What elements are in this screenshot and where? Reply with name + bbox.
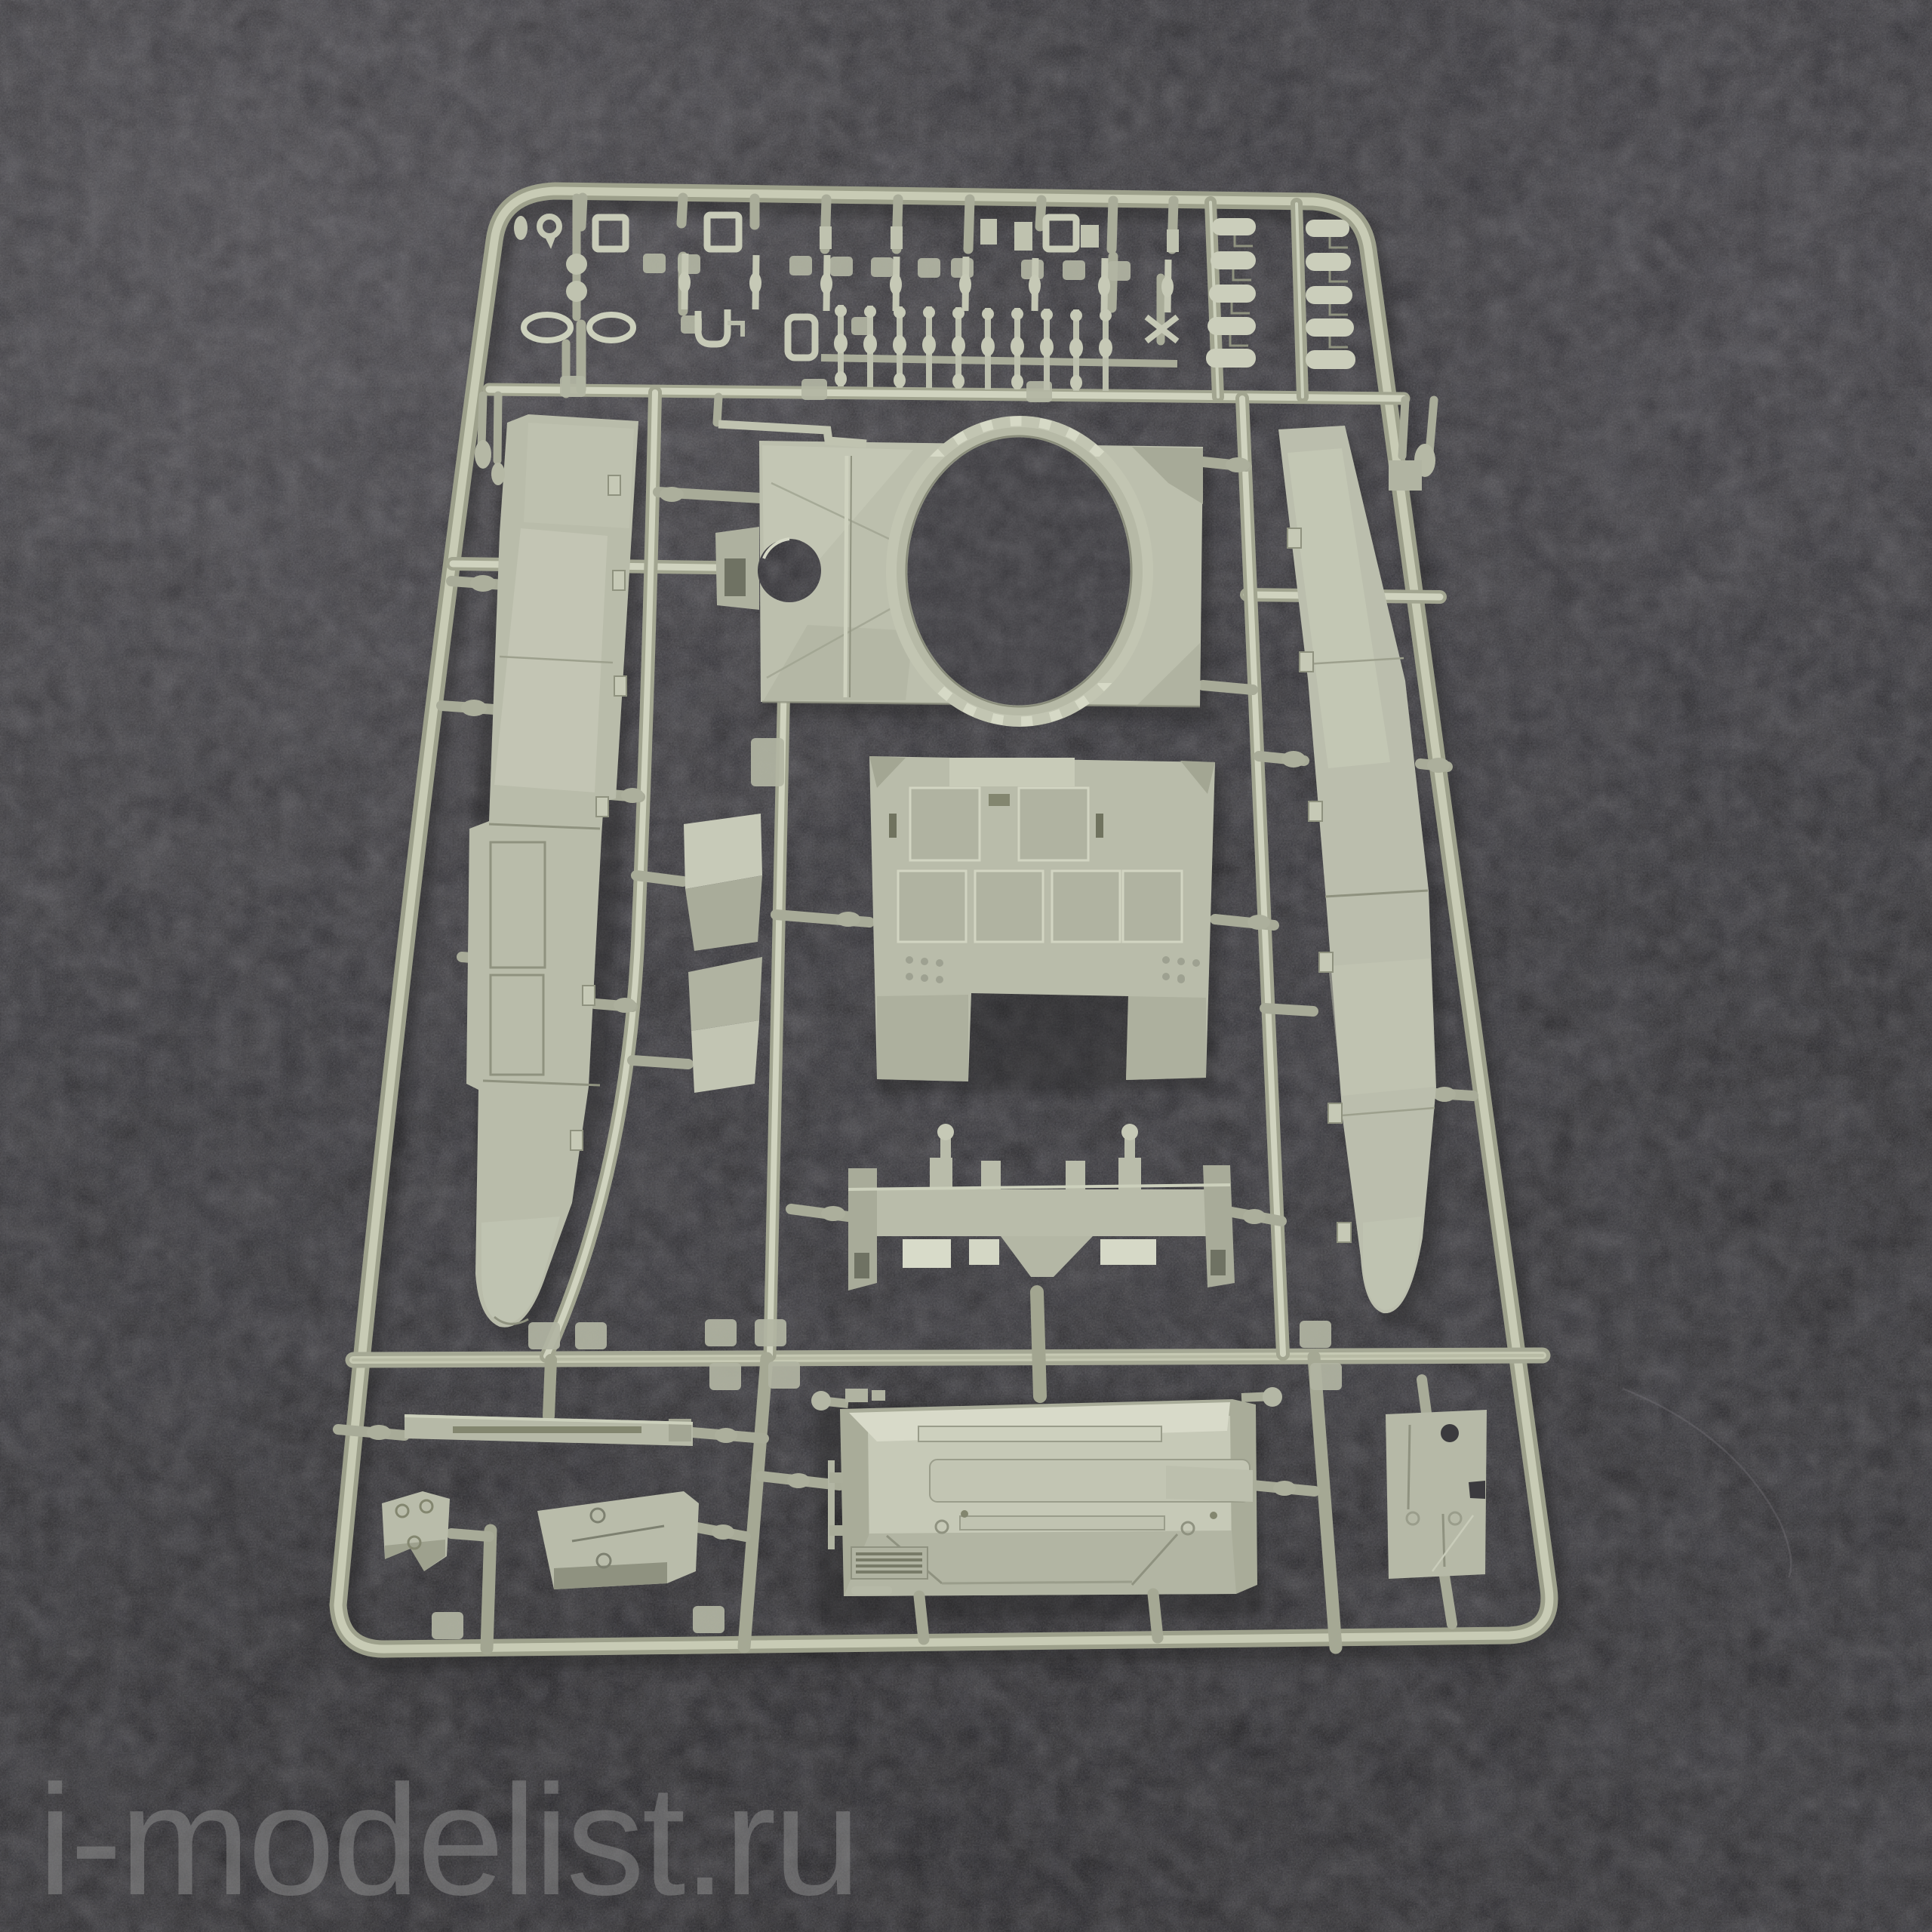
svg-text:i-modelist.ru: i-modelist.ru — [38, 1753, 858, 1928]
